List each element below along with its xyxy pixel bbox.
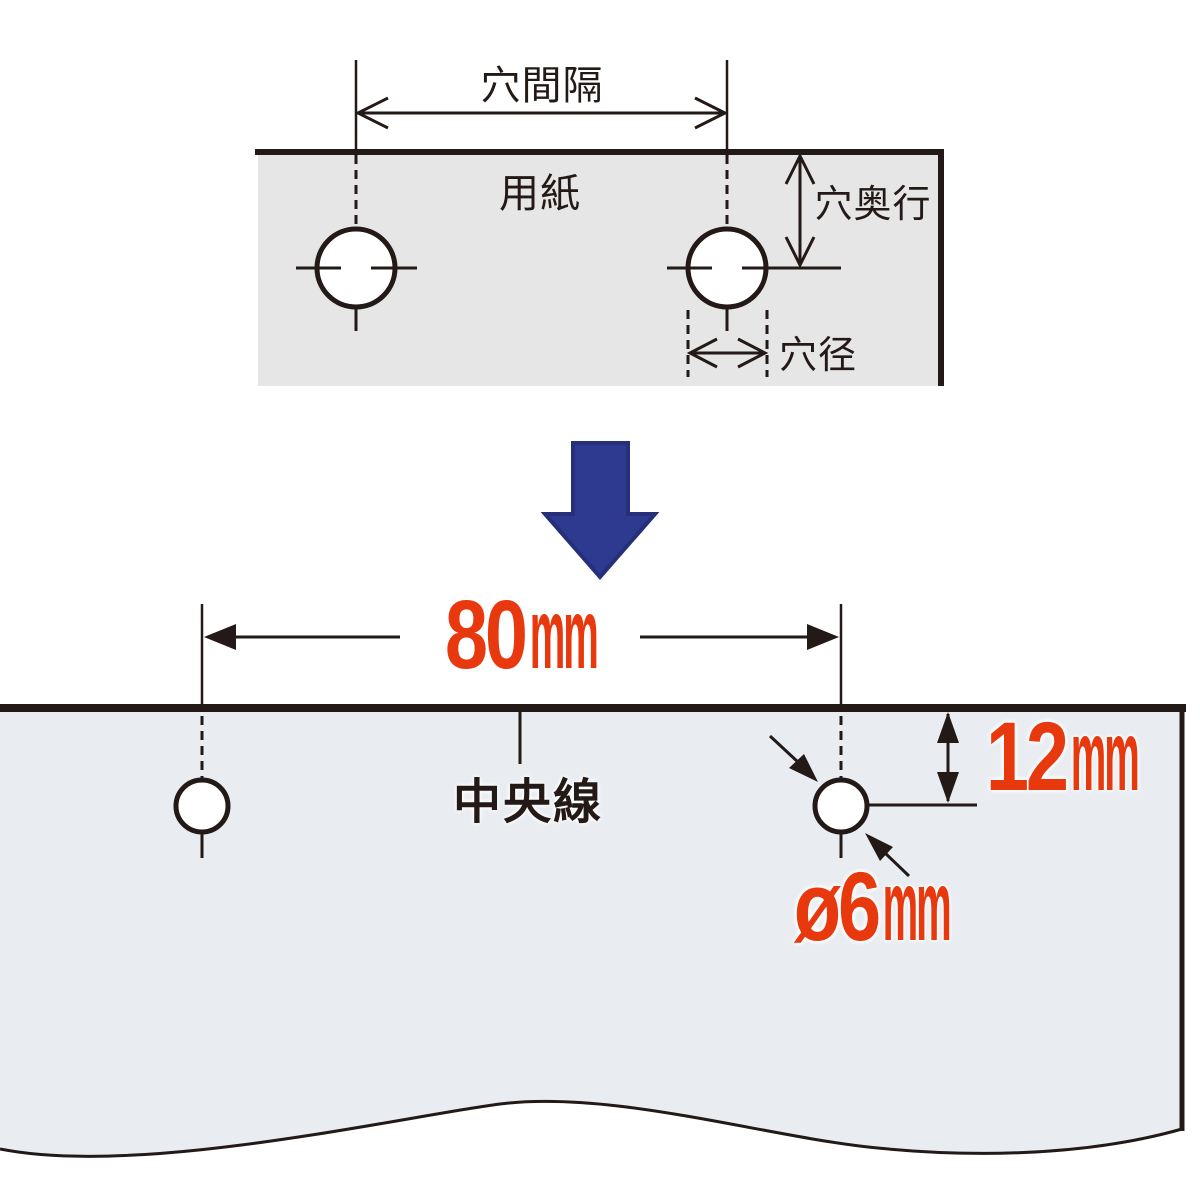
center-line-label: 中央線 — [453, 779, 603, 827]
spacing-value: 80 — [445, 580, 525, 689]
down-arrow-icon — [545, 443, 655, 577]
hole-depth-label: 穴奥行 — [814, 186, 931, 224]
hole-punch-spec-diagram: 穴間隔 用紙 穴奥行 穴径 中央線 80mm 12mm ø6mm — [0, 0, 1200, 1200]
diameter-dimension-value: ø6mm — [794, 856, 940, 956]
hole-spacing-label: 穴間隔 — [481, 66, 604, 106]
depth-unit: mm — [1071, 706, 1138, 806]
spacing-dimension-value: 80mm — [445, 584, 587, 684]
spacing-unit: mm — [530, 584, 597, 684]
hole-diameter-label: 穴径 — [779, 337, 857, 375]
diameter-value: ø6 — [794, 852, 878, 961]
paper-label: 用紙 — [499, 174, 581, 214]
depth-value: 12 — [986, 702, 1066, 811]
diagram-geometry — [0, 0, 1200, 1200]
diameter-unit: mm — [883, 856, 950, 956]
depth-dimension-value: 12mm — [986, 706, 1128, 806]
